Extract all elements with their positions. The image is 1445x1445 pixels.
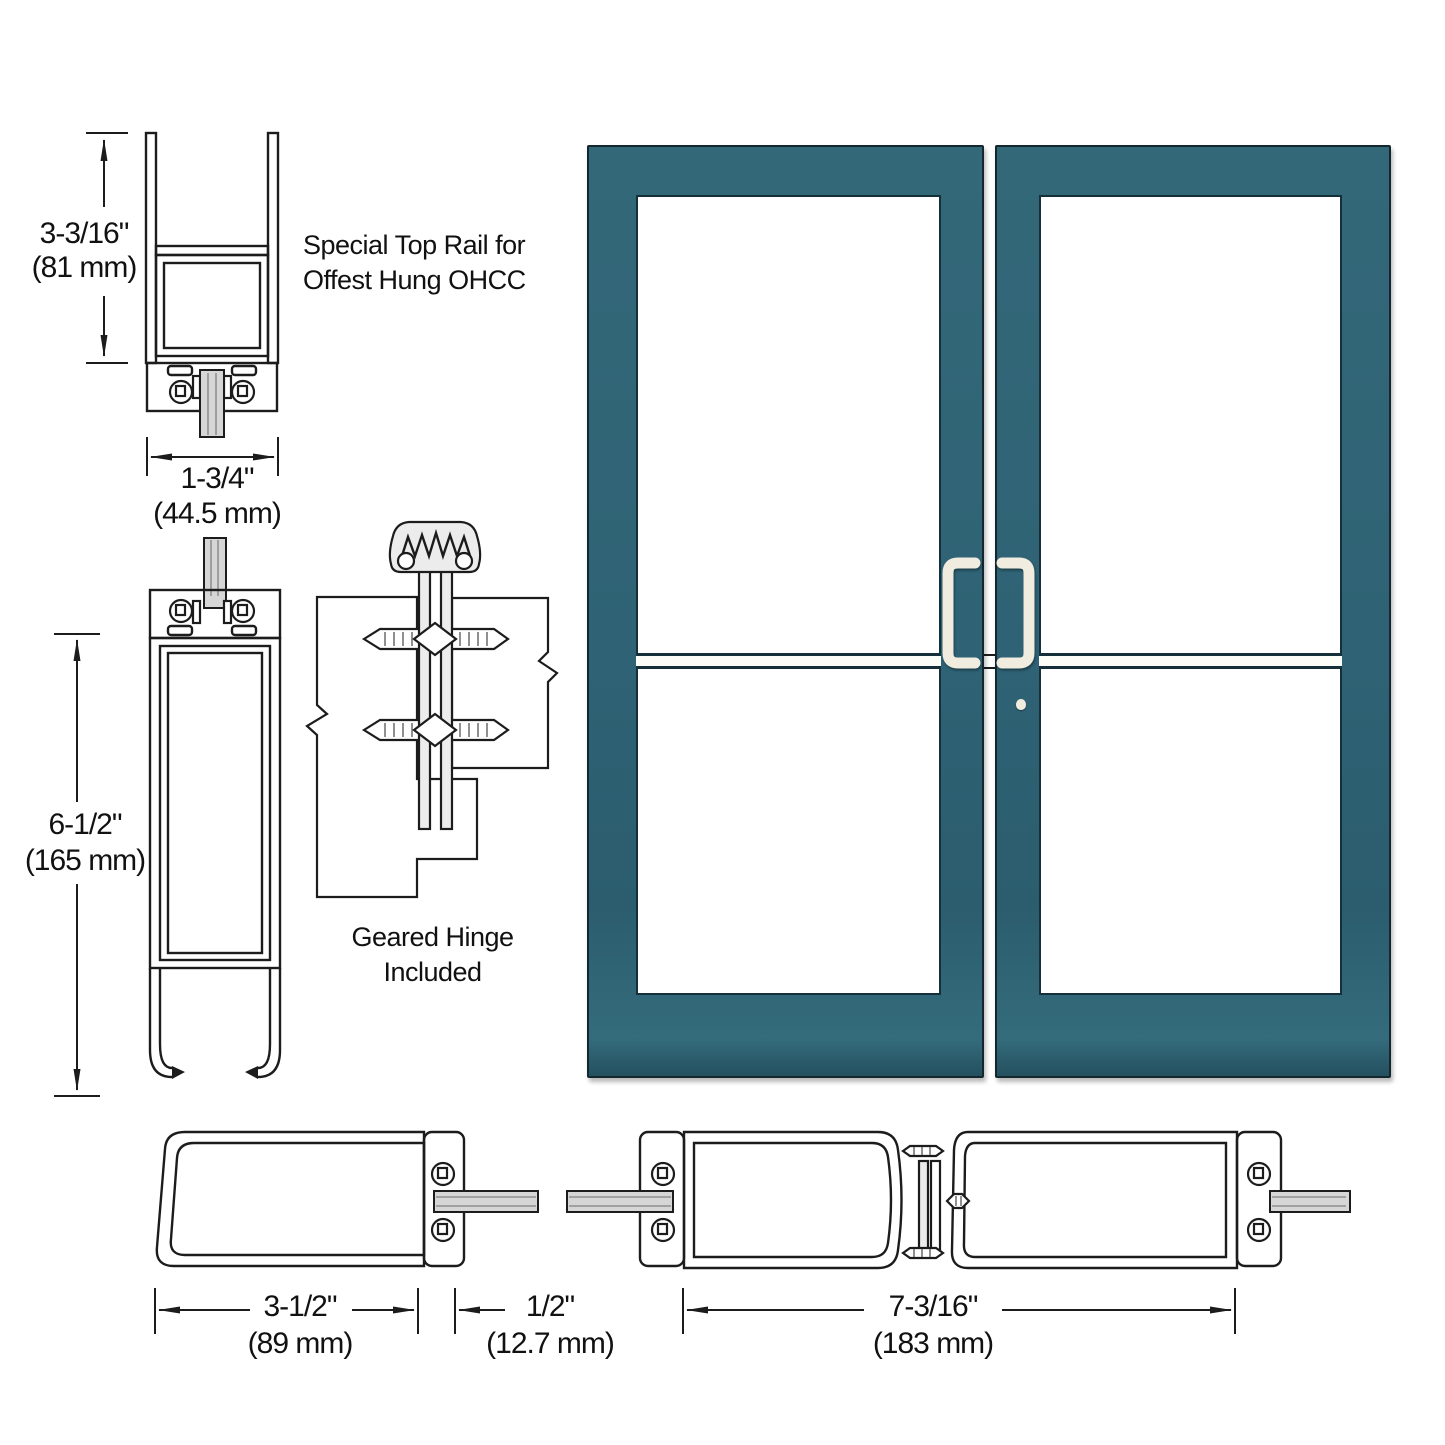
technical-drawing-canvas: 3-3/16" (81 mm) Special Top Rail for Off… [0, 0, 1445, 1445]
lock-stile-section-drawing [157, 1132, 538, 1266]
label-special-top-rail-line2: Offest Hung OHCC [303, 263, 526, 297]
door-right-panel [995, 145, 1391, 1078]
geared-hinge-detail-drawing [307, 522, 557, 897]
dim-top-rail-height-inches: 3-3/16" [22, 217, 146, 251]
door-left-pull-handle [941, 556, 979, 670]
door-right-midrail [1039, 653, 1342, 669]
door-right-pull-handle [998, 556, 1036, 670]
dim-lock-stile-inches: 3-1/2" [238, 1290, 362, 1324]
dim-glass-inset-metric: (12.7 mm) [465, 1327, 635, 1361]
label-geared-hinge-line2: Included [330, 955, 535, 989]
top-rail-section-drawing [146, 133, 278, 437]
dim-meeting-stiles-metric: (183 mm) [853, 1327, 1013, 1361]
bottom-rail-section-drawing [150, 538, 280, 1079]
door-left-midrail [636, 653, 941, 669]
dim-top-rail-height-metric: (81 mm) [22, 251, 146, 285]
dim-bottom-rail-height-inches: 6-1/2" [20, 808, 150, 842]
dim-bottom-rail-height-metric: (165 mm) [14, 844, 156, 878]
dim-glass-inset-inches: 1/2" [495, 1290, 605, 1324]
door-left-glass [636, 195, 941, 995]
dim-top-rail-depth-inches: 1-3/4" [155, 462, 279, 496]
cylinder-lock-dot [1016, 699, 1026, 710]
dim-meeting-stiles-inches: 7-3/16" [868, 1290, 998, 1324]
label-geared-hinge-line1: Geared Hinge [330, 920, 535, 954]
dim-lock-stile-metric: (89 mm) [230, 1327, 370, 1361]
meeting-stiles-section-drawing [567, 1132, 1350, 1268]
label-special-top-rail-line1: Special Top Rail for [303, 228, 525, 262]
door-right-glass [1039, 195, 1342, 995]
dim-top-rail-depth-metric: (44.5 mm) [143, 497, 291, 531]
door-left-panel [587, 145, 984, 1078]
